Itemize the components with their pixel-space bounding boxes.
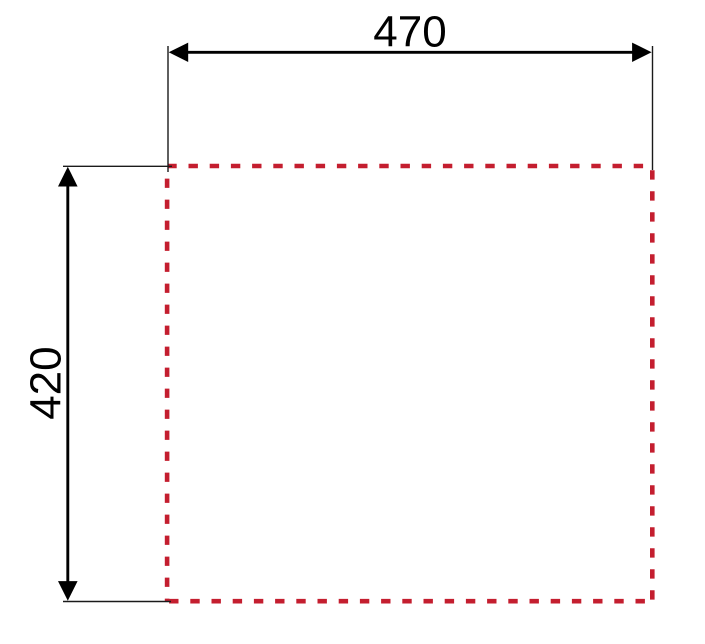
svg-text:420: 420 xyxy=(22,346,71,419)
svg-text:470: 470 xyxy=(373,8,446,57)
